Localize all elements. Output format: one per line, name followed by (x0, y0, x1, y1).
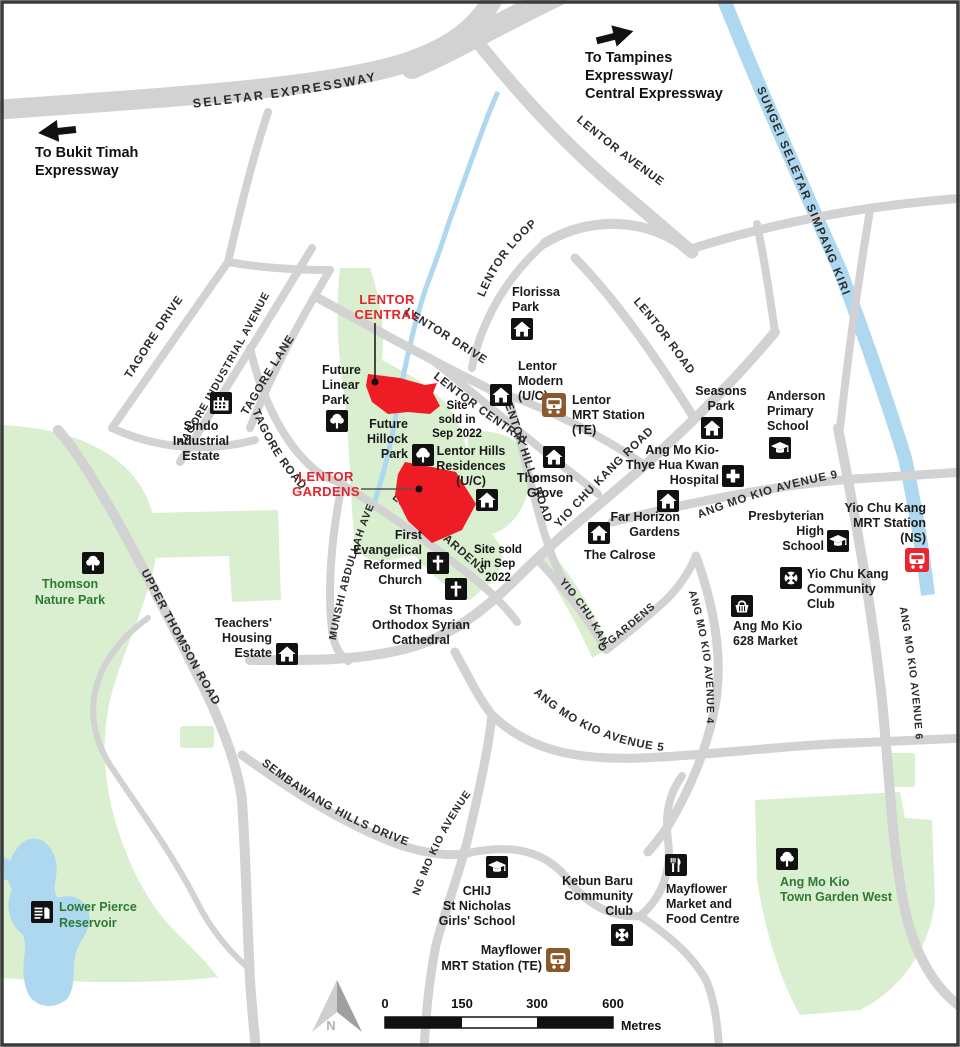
right-arrow-label: Expressway/ (585, 68, 673, 84)
mrt-ns-icon (905, 548, 929, 572)
poi-label: Residences (436, 459, 506, 473)
poi-label: Girls' School (439, 914, 516, 928)
poi-label: Thye Hua Kwan (626, 458, 719, 472)
poi-label: (TE) (572, 423, 596, 437)
poi-label: Gardens (629, 525, 680, 539)
market-icon (731, 595, 753, 617)
poi-label: Church (378, 573, 422, 587)
poi-label: Sindo (184, 419, 219, 433)
poi-label: Ang Mo Kio (780, 875, 850, 889)
hospital-icon (722, 465, 744, 487)
poi-label: School (782, 539, 824, 553)
poi-label: Linear (322, 378, 360, 392)
site-note-text: Site sold (474, 544, 522, 556)
tree-icon (82, 552, 104, 574)
poi-label: Thomson (42, 577, 98, 591)
lentor-location-map: SELETAR EXPRESSWAY LENTOR AVENUE SUNGEI … (0, 0, 960, 1047)
housing-icon (476, 489, 498, 511)
poi-label: Orthodox Syrian (372, 618, 470, 632)
school-icon (827, 530, 849, 552)
housing-icon (701, 417, 723, 439)
housing-icon (490, 384, 512, 406)
scale-bar-segment (385, 1017, 462, 1028)
poi-label: Kebun Baru (562, 874, 633, 888)
poi-label: Club (605, 904, 633, 918)
poi-label: Anderson (767, 389, 825, 403)
poi-label: Reservoir (59, 916, 117, 930)
lentor-gardens-site-label: GARDENS (292, 484, 360, 499)
lentor-central-site-label: CENTRAL (355, 307, 420, 322)
community-club-icon (780, 567, 802, 589)
mrt-te-icon (546, 948, 570, 972)
poi-label: Industrial (173, 434, 229, 448)
housing-icon (588, 522, 610, 544)
site-note-text: sold in (438, 414, 475, 426)
poi-label: Yio Chu Kang (807, 567, 888, 581)
poi-label: Teachers' (215, 616, 272, 630)
poi-label: Community (807, 582, 876, 596)
poi-label: Thomson (517, 471, 573, 485)
left-arrow-label: To Bukit Timah (35, 145, 138, 161)
tree-icon (776, 848, 798, 870)
poi-label: Mayflower (481, 943, 542, 957)
housing-icon (511, 318, 533, 340)
housing-icon (276, 643, 298, 665)
poi-label: (NS) (900, 531, 926, 545)
poi-label: Ang Mo Kio (733, 619, 803, 633)
poi-label: Lentor (518, 359, 557, 373)
poi-label: Market and (666, 897, 732, 911)
poi-label: Lentor (572, 393, 611, 407)
school-icon (486, 856, 508, 878)
poi-label: Evangelical (353, 543, 422, 557)
poi-label: MRT Station (853, 516, 926, 530)
poi-label: Club (807, 597, 835, 611)
poi-label: Community (564, 889, 633, 903)
site-note-text: Sep 2022 (432, 428, 482, 440)
lentor-gardens-site-label: LENTOR (298, 469, 354, 484)
north-label: N (326, 1018, 335, 1033)
poi-label: Lower Pierce (59, 900, 137, 914)
poi-label: Ang Mo Kio- (645, 443, 719, 457)
scale-tick: 0 (381, 996, 388, 1011)
map-canvas: SELETAR EXPRESSWAY LENTOR AVENUE SUNGEI … (0, 0, 960, 1047)
left-arrow-label: Expressway (35, 163, 119, 179)
food-icon (665, 854, 687, 876)
poi-label: St Nicholas (443, 899, 511, 913)
housing-icon (543, 446, 565, 468)
reservoir-icon (31, 901, 53, 923)
poi-label: Lentor Hills (437, 444, 506, 458)
community-club-icon (611, 924, 633, 946)
poi-label: Mayflower (666, 882, 727, 896)
poi-label: Reformed (364, 558, 422, 572)
poi-label: MRT Station (572, 408, 645, 422)
poi-label: Yio Chu Kang (845, 501, 926, 515)
poi-label: Grove (527, 486, 563, 500)
site-note-text: Site (446, 400, 467, 412)
poi-label: Primary (767, 404, 814, 418)
scale-bar-segment (537, 1017, 613, 1028)
poi-label: (U/C) (456, 474, 486, 488)
poi-label: Nature Park (35, 593, 105, 607)
poi-label: Park (381, 447, 408, 461)
poi-label: Hillock (367, 432, 408, 446)
park-patch-small (180, 726, 214, 748)
poi-label: First (395, 528, 423, 542)
poi-label: Hospital (670, 473, 719, 487)
poi-label: Future (322, 363, 361, 377)
lentor-gardens-leader-dot (416, 486, 423, 493)
right-arrow-label: To Tampines (585, 50, 672, 66)
poi-label: Presbyterian (748, 509, 824, 523)
site-note-text: 2022 (485, 572, 511, 584)
tree-icon (412, 444, 434, 466)
poi-label: Park (512, 300, 539, 314)
poi-label: Florissa (512, 285, 561, 299)
poi-label: CHIJ (463, 884, 492, 898)
poi-label: Future (369, 417, 408, 431)
scale-tick: 150 (451, 996, 473, 1011)
site-note-text: in Sep (481, 558, 516, 570)
church-icon (427, 552, 449, 574)
poi-label: Modern (518, 374, 563, 388)
poi-label: 628 Market (733, 634, 798, 648)
lentor-central-leader-dot (372, 379, 379, 386)
right-arrow-label: Central Expressway (585, 86, 723, 102)
mrt-te-icon (542, 393, 566, 417)
poi-label: Park (707, 399, 734, 413)
poi-label: Food Centre (666, 912, 740, 926)
tree-icon (326, 410, 348, 432)
school-icon (769, 437, 791, 459)
poi-label: Far Horizon (611, 510, 680, 524)
scale-unit: Metres (621, 1019, 661, 1033)
scale-tick: 600 (602, 996, 624, 1011)
poi-label: Housing (222, 631, 272, 645)
poi-label: Park (322, 393, 349, 407)
church-icon (445, 578, 467, 600)
poi-label: Estate (234, 646, 272, 660)
poi-label: School (767, 419, 809, 433)
poi-label: MRT Station (TE) (441, 959, 542, 973)
housing-icon (657, 490, 679, 512)
lentor-central-site-label: LENTOR (359, 292, 415, 307)
scale-tick: 300 (526, 996, 548, 1011)
factory-icon (210, 392, 232, 414)
poi-label: Estate (182, 449, 220, 463)
poi-label: High (796, 524, 824, 538)
poi-label: Seasons (695, 384, 746, 398)
poi-label: St Thomas (389, 603, 453, 617)
poi-label: The Calrose (584, 548, 656, 562)
poi-label: Cathedral (392, 633, 450, 647)
poi-label: Town Garden West (780, 890, 893, 904)
